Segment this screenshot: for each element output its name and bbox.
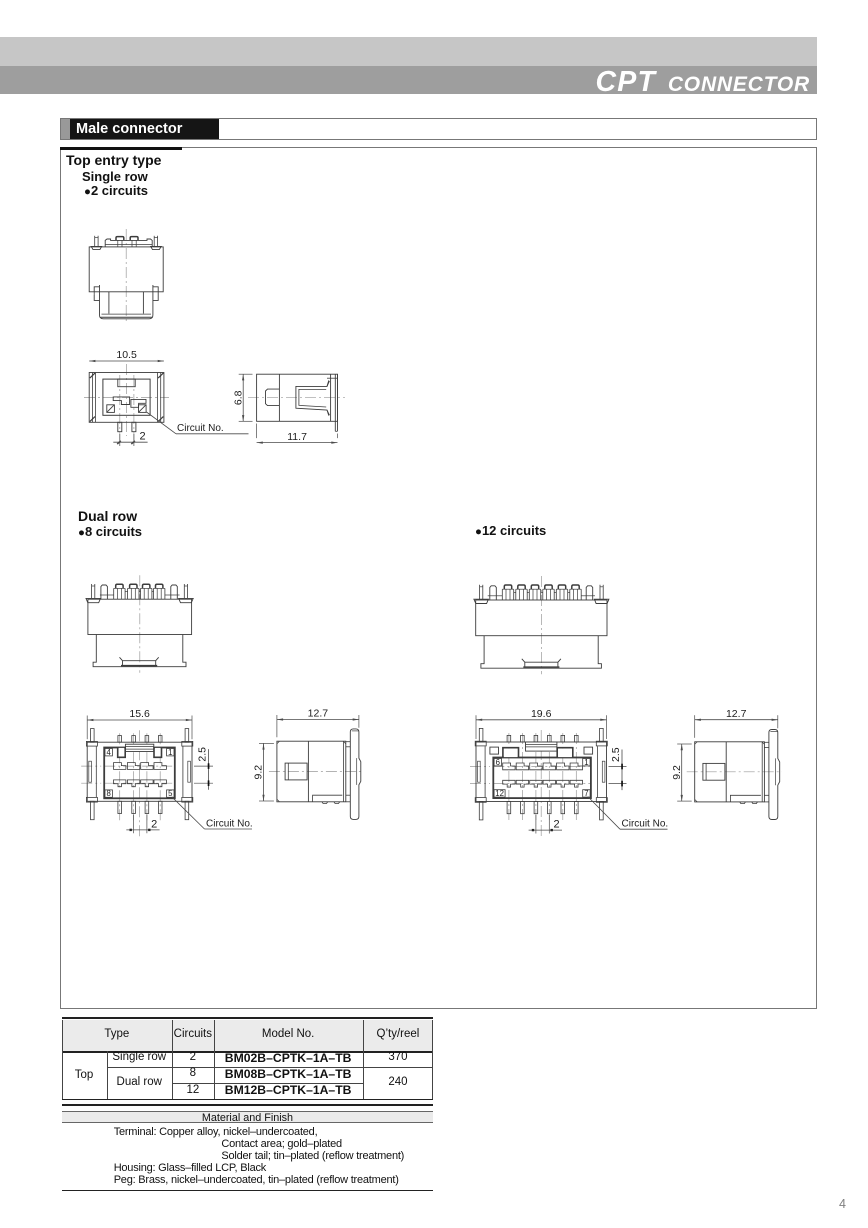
svg-text:8: 8 xyxy=(107,789,111,798)
svg-text:CONNECTOR: CONNECTOR xyxy=(668,73,810,96)
svg-text:Circuit No.: Circuit No. xyxy=(622,819,669,830)
svg-text:12.7: 12.7 xyxy=(308,708,329,720)
svg-text:CPT: CPT xyxy=(596,66,658,98)
svg-text:1: 1 xyxy=(584,758,588,767)
svg-text:12: 12 xyxy=(495,789,504,798)
svg-text:2: 2 xyxy=(554,819,560,831)
svg-text:1: 1 xyxy=(168,748,172,757)
svg-text:Circuit No.: Circuit No. xyxy=(177,423,224,434)
svg-text:6: 6 xyxy=(496,758,500,767)
svg-text:11.7: 11.7 xyxy=(287,431,307,443)
svg-text:6.8: 6.8 xyxy=(232,390,244,405)
svg-text:4: 4 xyxy=(107,748,112,757)
svg-text:2: 2 xyxy=(151,819,157,831)
svg-text:2.5: 2.5 xyxy=(197,747,209,762)
svg-text:9.2: 9.2 xyxy=(671,765,683,780)
svg-text:2.5: 2.5 xyxy=(610,747,622,762)
svg-text:10.5: 10.5 xyxy=(116,349,137,361)
svg-text:9.2: 9.2 xyxy=(253,765,265,780)
svg-text:12.7: 12.7 xyxy=(726,708,747,720)
svg-text:2: 2 xyxy=(140,431,146,443)
svg-text:15.6: 15.6 xyxy=(129,708,150,720)
svg-text:Circuit No.: Circuit No. xyxy=(206,819,253,830)
svg-text:19.6: 19.6 xyxy=(531,708,552,720)
